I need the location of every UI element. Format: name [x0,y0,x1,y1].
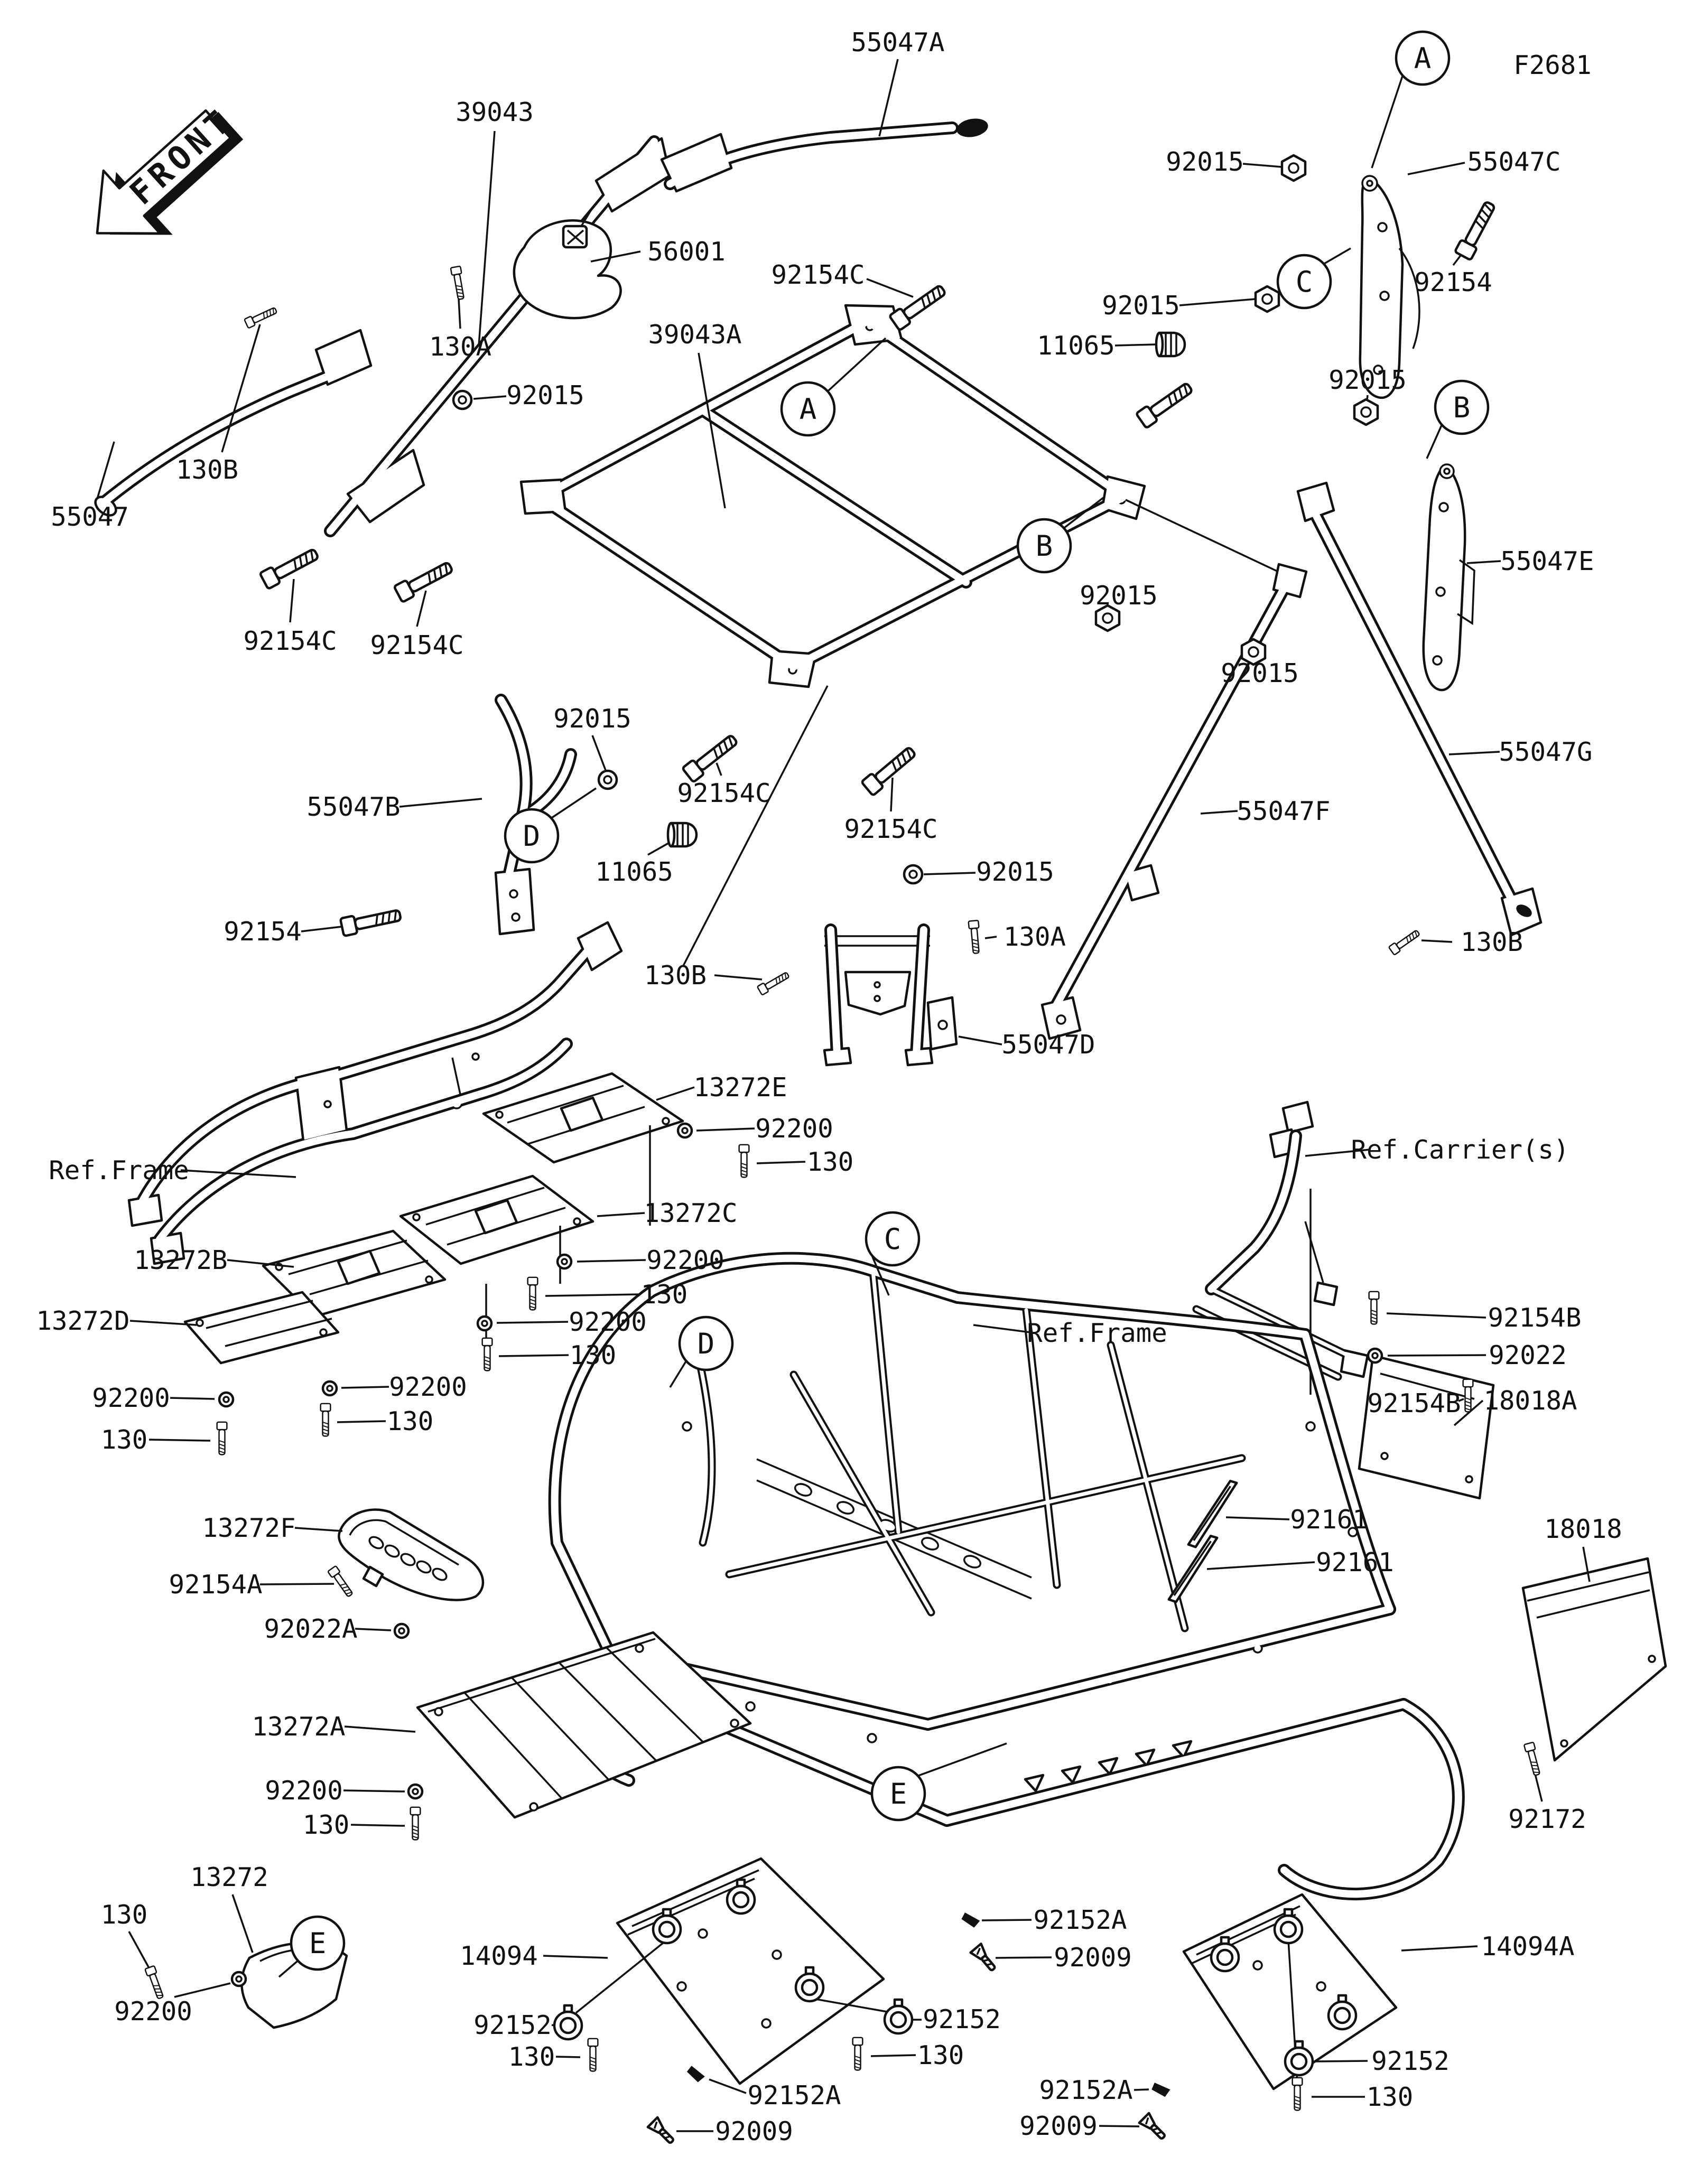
hardware-washer [453,391,471,409]
line-art [512,913,519,921]
leader-line [757,1162,805,1163]
guide-line [1126,500,1289,577]
leader-line [233,1894,253,1953]
line-art [739,1145,749,1178]
hardware-ring [232,1972,246,1986]
line-art [695,735,738,771]
line-art [1193,1486,1231,1541]
line-art [145,1966,165,2000]
hardware-bolt [260,545,321,589]
line-art [873,1271,898,1532]
line-art [762,2019,770,2028]
hardware-bolt [1136,380,1195,428]
part-label: 56001 [647,237,726,267]
part-55047a-rail [662,116,989,191]
line-art [197,1320,203,1326]
leader-line [985,937,997,938]
hardware-boltsm [969,920,981,954]
line-art [1262,294,1272,304]
leader-line [1099,2126,1139,2126]
part-label: 92152A [1039,2075,1132,2105]
line-art [411,1807,421,1815]
part-label: 18018 [1544,1514,1622,1544]
line-art [1285,1909,1292,1916]
hardware-clip [1151,2083,1171,2098]
line-art [1149,382,1193,417]
part-label: 92154C [677,778,770,808]
line-art [668,823,674,846]
leader-line [1387,1313,1486,1318]
hardware-nut [1282,155,1305,181]
part-label: 92015 [1328,365,1407,395]
hardware-bolt [682,732,740,782]
line-art [947,1704,1404,1821]
hardware-boltsm [853,2038,863,2070]
callout-leader [828,338,886,391]
line-art [1295,2041,1303,2048]
line-art [328,1566,355,1598]
leader-line [1467,561,1501,563]
line-art [1306,1422,1315,1431]
part-label: 130 [387,1406,434,1436]
part-label: Ref.Frame [1027,1318,1167,1348]
leader-line [473,396,506,399]
part-label: 39043 [456,97,534,127]
line-art [685,2065,706,2084]
line-art [1293,2078,1303,2111]
part-label: 55047D [1001,1030,1095,1060]
line-art [435,1708,442,1715]
line-art [793,1482,813,1498]
line-art [699,1929,707,1938]
leader-line [871,2055,916,2056]
line-art [1463,1379,1473,1387]
line-art [482,1338,493,1346]
leader-line [996,1957,1052,1958]
line-art [417,1632,750,1817]
line-art [411,1807,421,1840]
line-art [217,1422,227,1455]
line-art [496,869,534,934]
line-art [1281,1922,1296,1937]
leader-line [714,975,762,979]
part-55047d-bracket [824,930,956,1065]
line-art [773,1950,781,1959]
part-label: 130 [101,1900,148,1930]
part-label: 130B [176,455,238,485]
line-art [1369,1292,1379,1324]
part-label: 92015 [506,380,584,410]
hardware-bolt [340,906,402,936]
leader-line [290,579,294,622]
callout-leader [918,1743,1007,1776]
callout-leader [1372,76,1402,168]
line-art [731,1720,738,1727]
line-art [528,1277,538,1285]
line-art [981,1955,996,1971]
part-label: 92015 [976,857,1054,887]
guide-line [683,686,828,967]
line-art [802,1980,817,1995]
part-label: 130 [303,1810,350,1840]
line-art [903,285,946,320]
part-label: 130 [101,1425,148,1455]
line-art [1211,1136,1296,1289]
callout-letter: C [1296,265,1313,298]
line-art [1466,1476,1472,1482]
hardware-clip [685,2065,706,2084]
hardware-ring [408,1785,422,1798]
line-art [482,1338,493,1371]
line-art [1151,2083,1171,2098]
part-label: 55047B [306,792,400,822]
leader-line [499,1355,569,1356]
leader-line [717,763,721,776]
front-direction-badge: FRONT [69,83,263,272]
line-art [528,1277,538,1310]
line-art [1396,930,1420,949]
line-art [459,396,466,404]
line-art [496,1112,503,1118]
leader-line [592,735,606,770]
line-art [683,1422,691,1431]
hardware-boltsm [1524,1742,1542,1776]
leader-line [1115,344,1155,346]
line-art [739,1145,749,1152]
hardware-boltsm [739,1145,749,1178]
part-label: 130 [917,2040,964,2070]
part-label: 92154C [243,626,337,656]
hardware-screw [971,1944,999,1974]
line-art [794,1375,931,1612]
line-art [895,2000,902,2006]
part-label: 92015 [553,704,631,734]
parts-diagram-canvas: FRONT [0,0,1691,2184]
line-art [806,1967,813,1974]
leader-line [982,1920,1032,1920]
line-art [588,2039,598,2071]
part-label: 55047E [1500,546,1594,576]
part-label: 92009 [1019,2111,1098,2141]
part-label: 14094A [1481,1931,1574,1962]
part-label: 92154 [224,917,302,947]
leader-line [345,1726,415,1732]
part-label: 18018A [1483,1386,1577,1416]
hardware-boltsm [328,1566,355,1598]
hardware-boltsm [1369,1292,1379,1324]
line-art [452,1058,461,1097]
hardware-nut [1256,286,1279,312]
leader-line [295,1528,342,1531]
line-art [1359,1356,1493,1498]
line-art [1283,1102,1313,1133]
part-label: Ref.Carrier(s) [1351,1135,1569,1165]
part-label: 92154C [771,260,865,290]
callout-letter: A [1414,42,1432,75]
part-label: 92161 [1316,1547,1394,1578]
part-label: 130B [1461,927,1523,957]
line-art [321,1404,331,1436]
part-label: 92200 [755,1114,833,1144]
line-art [1292,2054,1306,2069]
part-label: 55047 [51,502,129,532]
line-art [1524,1742,1542,1776]
leader-line [1207,1562,1315,1569]
line-art [677,1982,686,1991]
part-label: 92015 [1221,658,1299,688]
hardware-boltsm [528,1277,538,1310]
line-art [1311,505,1510,897]
line-art [969,920,981,954]
leader-line [1421,940,1452,942]
line-art [413,1789,418,1794]
line-art [562,1259,567,1264]
leader-line [597,1213,645,1216]
line-art [564,2005,572,2012]
line-art [868,1734,876,1742]
part-55047e-brace [1424,464,1474,690]
line-art [1150,2124,1165,2139]
line-art [939,1021,947,1029]
hardware-boltsm [321,1404,331,1436]
hardware-washer [904,865,922,883]
part-label: 92152A [1033,1905,1127,1935]
leader-line [699,353,725,508]
part-label: 130A [429,332,491,362]
part-label: 92200 [92,1383,170,1413]
part-label: 92154B [1367,1388,1461,1418]
line-art [1463,1379,1473,1412]
part-label: 55047G [1499,737,1592,767]
line-art [1305,1221,1323,1283]
leader-line [341,1387,389,1388]
callout-letter: B [1453,391,1471,424]
part-label: F2681 [1513,50,1592,80]
line-art [1444,469,1450,474]
part-label: 92154B [1488,1303,1581,1333]
part-label: 130B [644,960,707,991]
leader-line [459,299,460,329]
leader-line [543,1956,608,1958]
line-art [875,982,880,987]
line-art [1249,647,1258,657]
line-art [334,1573,353,1597]
part-label: 92154A [169,1570,262,1600]
callout-letter: E [309,1927,327,1960]
hardware-boltsm [1389,928,1421,955]
callout-letter: B [1036,529,1053,563]
line-art [321,1404,331,1411]
hardware-boltsm [1293,2078,1303,2111]
leader-line [656,1087,694,1100]
part-label: 55047A [851,27,944,58]
line-art [960,1912,981,1928]
callout-leader [1324,248,1351,264]
line-art [1523,1558,1666,1760]
line-art [530,1803,537,1810]
line-art [663,1118,669,1124]
line-art [659,2129,674,2143]
part-55047c-brace [1360,176,1419,398]
hardware-bolt [889,282,948,331]
leader-line [170,1398,215,1399]
part-label: 92154C [370,630,463,660]
leader-line [343,1790,405,1791]
hardware-boltsm [757,970,791,995]
line-art [757,970,791,995]
leader-line [355,1629,391,1630]
leader-line [260,1584,334,1584]
line-art [1424,465,1465,690]
line-art [875,996,880,1001]
hardware-ring [678,1124,692,1137]
hardware-ring [558,1255,571,1268]
leader-line [174,1983,230,1997]
callout-leader [670,1361,686,1387]
hardware-boltsm [217,1422,227,1455]
part-label: 92172 [1508,1804,1586,1834]
line-art [962,1554,982,1570]
line-art [1369,1292,1379,1299]
line-art [1378,223,1387,231]
line-art [1389,928,1421,955]
leader-line [696,1128,755,1131]
hardware-boltsm [482,1338,493,1371]
ref-carrier [1196,1102,1368,1395]
leader-line [1201,811,1238,814]
hardware-boltsm [145,1966,165,2000]
line-art [1335,2008,1350,2023]
line-art [327,1386,332,1391]
hardware-clip [960,1912,981,1928]
line-art [1253,1961,1262,1970]
line-art [1293,2078,1303,2085]
hardware-boltsm [1463,1379,1473,1412]
line-art [1103,613,1112,623]
line-art [236,1976,241,1982]
part-label: 130 [641,1280,688,1310]
leader-line [417,591,426,627]
part-label: 92009 [715,2116,793,2146]
part-55047-rail [92,330,371,519]
part-label: 39043A [648,320,741,350]
line-art [969,920,979,929]
part-label: 13272 [190,1862,268,1892]
leader-line [867,279,913,297]
line-art [324,1101,331,1107]
leader-line [924,873,975,874]
leader-line [1243,164,1282,167]
hardware-bolt [1455,200,1499,260]
part-label: 92200 [389,1372,467,1402]
part-label: 13272C [644,1198,737,1228]
leader-line [497,1322,568,1323]
hardware-boltsm [244,305,278,328]
part-label: 92009 [1054,1943,1132,1973]
hardware-ring [478,1317,491,1330]
line-art [682,1128,687,1133]
part-label: 92200 [114,1996,192,2027]
line-art [746,1702,755,1711]
leader-line [879,59,898,136]
part-label: 13272F [202,1513,295,1543]
line-art [330,142,654,531]
part-label: 14094 [460,1941,538,1971]
hardware-boltsm [588,2039,598,2071]
leader-line [577,1260,646,1262]
hardware-grommet [885,2000,912,2033]
line-art [891,2012,906,2027]
part-label: 55047C [1467,147,1560,177]
line-art [733,1892,748,1907]
line-art [835,1500,855,1516]
line-art [853,2038,863,2070]
line-art [1372,1353,1378,1358]
part-label: 130 [807,1147,854,1177]
leader-line [1449,752,1500,754]
line-art [845,972,910,1014]
line-art [1436,587,1445,596]
callout-letter: D [523,819,541,853]
part-13272a-plate [417,1632,750,1817]
callout-leader [1427,425,1442,459]
leader-line [1401,1946,1478,1950]
callout-letter: E [890,1777,907,1810]
line-art [1026,1310,1057,1585]
part-label: 92152 [923,2004,1001,2034]
part-label: 55047F [1237,796,1330,826]
hardware-boltsm [451,266,466,300]
leader-line [1179,299,1256,305]
line-art [320,1329,327,1336]
leader-line [1388,1355,1486,1356]
part-label: 92200 [265,1776,343,1806]
line-art [1315,1283,1337,1305]
part-label: 92152 [1371,2046,1450,2076]
leader-line [1134,2089,1149,2090]
callout-letter: A [800,393,817,426]
part-label: 92152A [747,2080,841,2111]
part-label: 92154C [844,814,937,844]
line-art [955,116,990,139]
leader-line [399,799,482,807]
line-art [920,1536,940,1552]
line-art [928,1609,1390,1724]
line-art [1218,1950,1232,1965]
leader-line [1408,163,1465,174]
line-art [1367,181,1372,186]
part-label: 13272D [36,1306,129,1336]
line-art [217,1422,227,1430]
leader-line [556,2057,580,2057]
callout-letter: C [884,1222,902,1256]
hardware-cap [668,823,696,846]
line-art [244,305,278,328]
part-label: 92161 [1290,1505,1368,1535]
part-label: 92200 [646,1245,724,1275]
line-art [604,776,611,783]
part-label: 130A [1004,922,1066,952]
part-label: 13272A [252,1712,345,1742]
line-art [1649,1656,1655,1662]
part-18018-panel [1523,1558,1666,1760]
line-art [399,1628,404,1634]
line-art [1561,1740,1567,1747]
leader-line [545,1294,639,1296]
line-art [1464,201,1495,246]
leader-line [337,1421,386,1422]
callout-letter: D [698,1327,715,1360]
